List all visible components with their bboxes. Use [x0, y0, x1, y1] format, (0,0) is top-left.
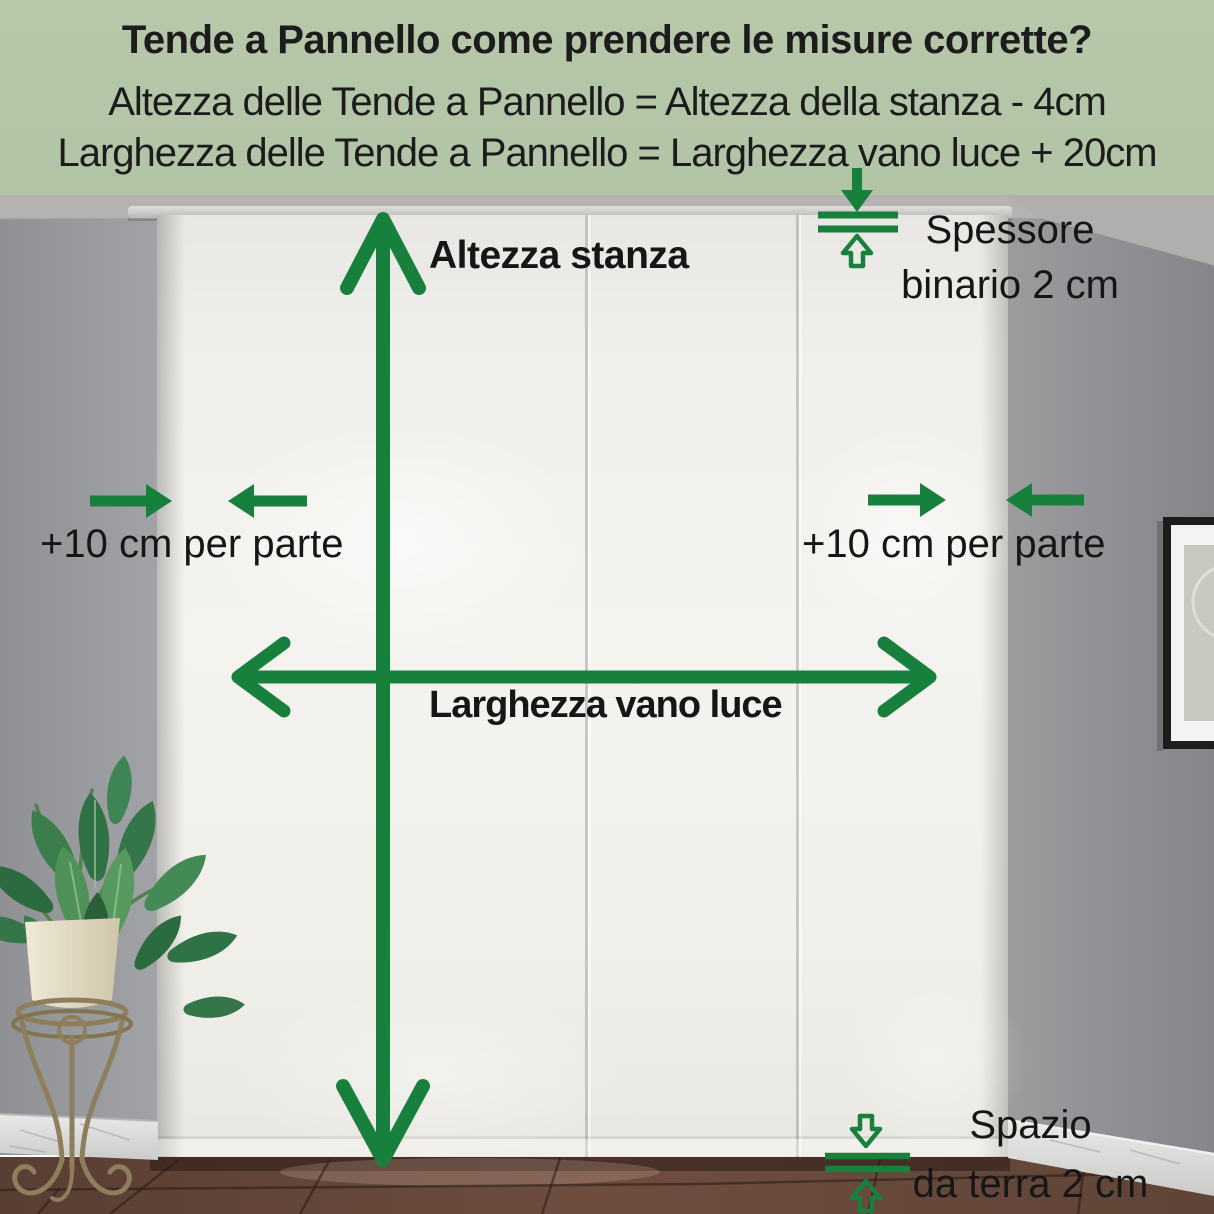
panel-seam	[796, 215, 802, 1158]
track-thickness-label: Spessore binario 2 cm	[880, 203, 1140, 313]
infographic: Tende a Pannello come prendere le misure…	[0, 0, 1214, 1214]
side-allowance-label-right: +10 cm per parte	[802, 522, 1106, 567]
page-title: Tende a Pannello come prendere le misure…	[0, 18, 1214, 63]
baseboard-left	[0, 1114, 158, 1160]
opening-width-label: Larghezza vano luce	[429, 684, 782, 727]
track-thickness-line1: Spessore	[880, 203, 1140, 258]
formula-height: Altezza delle Tende a Pannello = Altezza…	[0, 80, 1214, 125]
track-thickness-line2: binario 2 cm	[880, 258, 1140, 313]
plant-pot	[25, 918, 120, 1008]
picture-frame	[1157, 517, 1214, 751]
floor-gap-label: Spazio da terra 2 cm	[903, 1096, 1158, 1214]
formula-width: Larghezza delle Tende a Pannello = Largh…	[0, 131, 1214, 176]
floor-gap-line2: da terra 2 cm	[903, 1155, 1158, 1214]
floor-gap-line1: Spazio	[903, 1096, 1158, 1155]
header-band: Tende a Pannello come prendere le misure…	[0, 0, 1214, 195]
side-allowance-label-left: +10 cm per parte	[40, 522, 344, 567]
room-height-label: Altezza stanza	[429, 234, 689, 278]
